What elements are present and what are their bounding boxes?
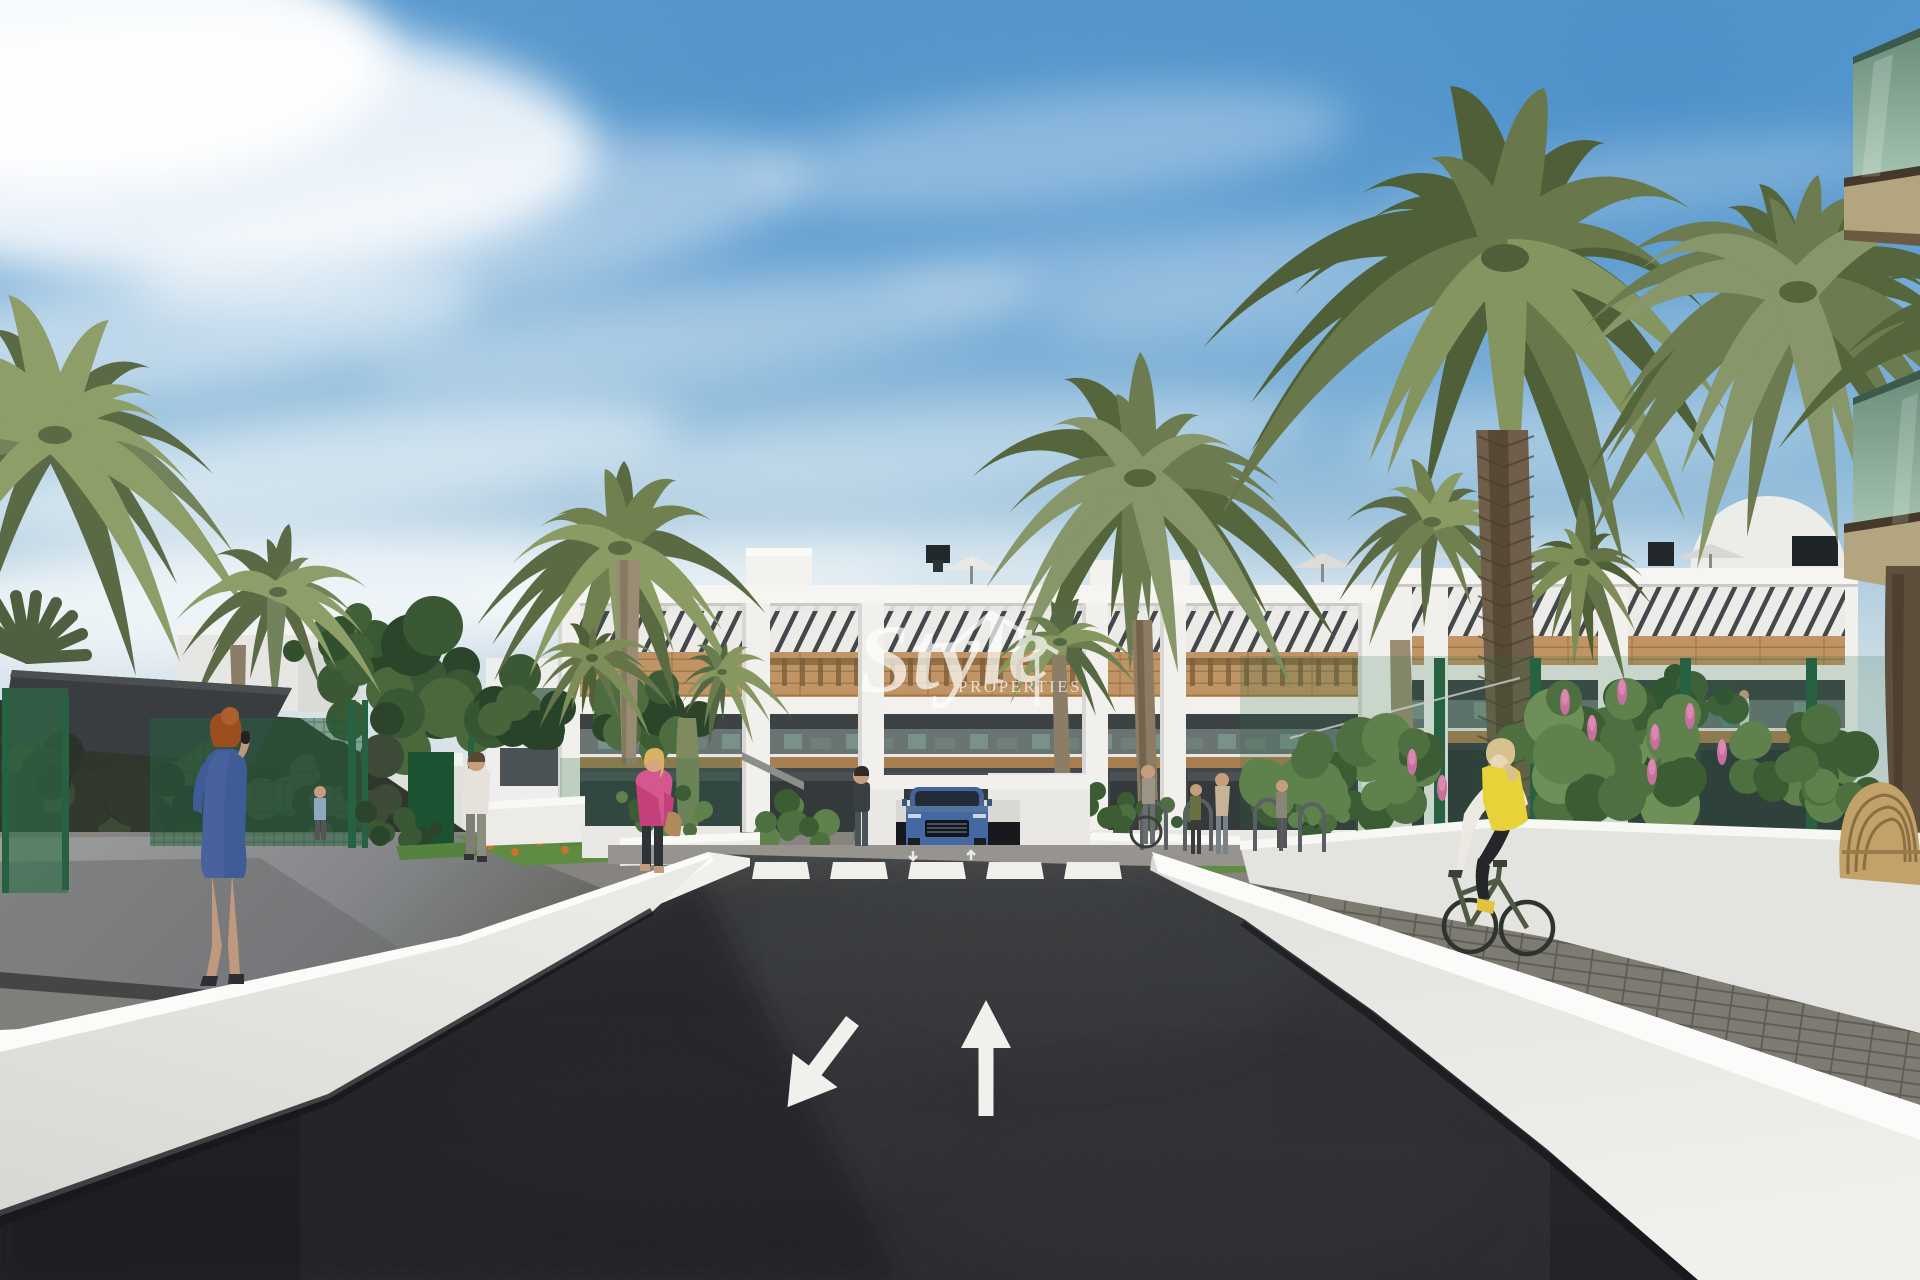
svg-text:PROPERTIES: PROPERTIES xyxy=(958,677,1082,696)
